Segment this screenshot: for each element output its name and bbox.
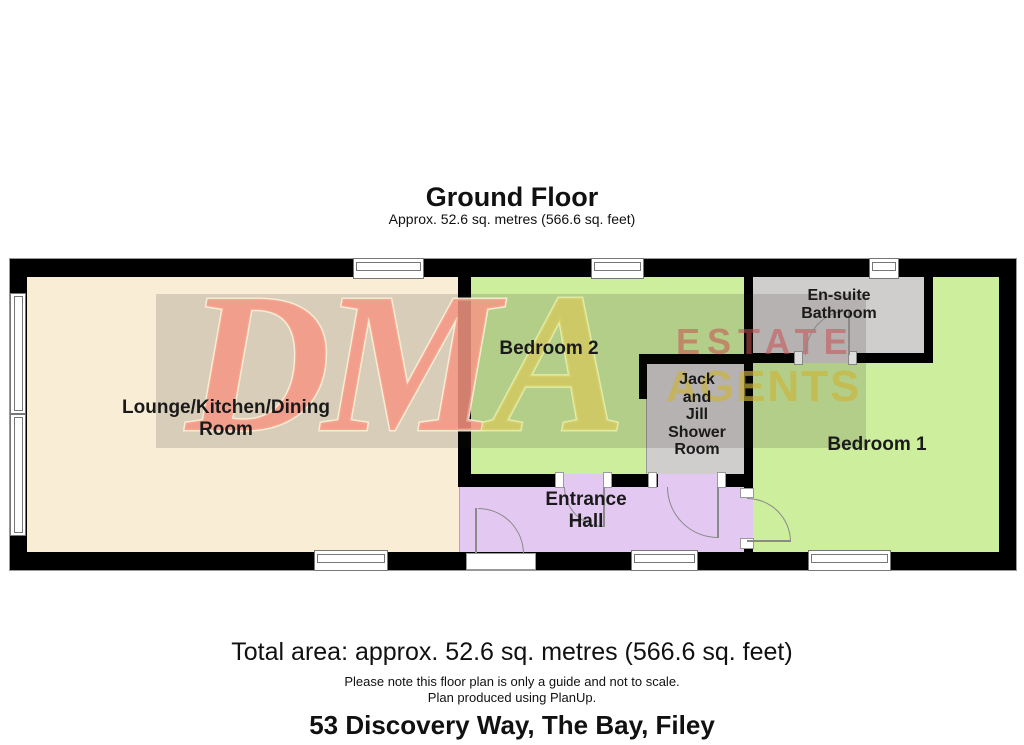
doorway-bedroom2 (564, 474, 604, 487)
credit-text: Plan produced using PlanUp. (0, 690, 1024, 705)
door-threshold (648, 472, 657, 488)
window (10, 414, 26, 536)
disclaimer-text: Please note this floor plan is only a gu… (0, 674, 1024, 689)
label-lounge-kitchen-dining: Lounge/Kitchen/Dining Room (66, 397, 386, 441)
window (808, 550, 891, 571)
doorway-shower (658, 474, 718, 487)
watermark-letter-a: A (492, 253, 617, 474)
wall-ensuite-right (924, 259, 933, 363)
window (10, 293, 26, 414)
floor-plan: DMA ESTATE AGENTS Lounge/Kitchen/Dining … (9, 258, 1017, 571)
window (869, 258, 899, 279)
page-title: Ground Floor (0, 182, 1024, 213)
door-threshold (740, 488, 754, 498)
door-threshold (717, 472, 726, 488)
door-leaf-bedroom1 (747, 540, 791, 542)
front-door-threshold (466, 553, 536, 570)
label-jack-and-jill-shower: Jack and Jill Shower Room (637, 371, 757, 459)
total-area-text: Total area: approx. 52.6 sq. metres (566… (0, 638, 1024, 667)
door-threshold (555, 472, 564, 488)
window (631, 550, 698, 571)
door-leaf-shower-room (717, 487, 719, 538)
page-subtitle: Approx. 52.6 sq. metres (566.6 sq. feet) (0, 211, 1024, 227)
door-leaf-front-entrance (475, 508, 477, 554)
label-ensuite-bathroom: En-suite Bathroom (759, 287, 919, 322)
property-address: 53 Discovery Way, The Bay, Filey (0, 710, 1024, 741)
label-entrance-hall: Entrance Hall (486, 489, 686, 533)
window (314, 550, 388, 571)
label-bedroom-1: Bedroom 1 (777, 434, 977, 456)
door-threshold (603, 472, 612, 488)
label-bedroom-2: Bedroom 2 (449, 338, 649, 360)
